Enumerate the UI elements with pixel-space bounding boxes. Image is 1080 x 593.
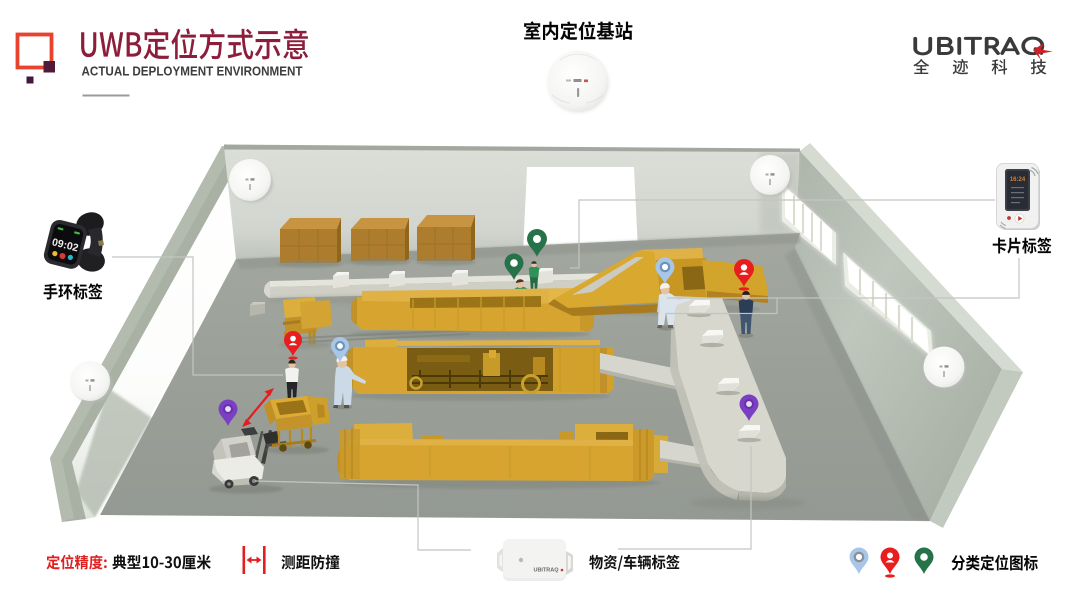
svg-text:UBITRAQ: UBITRAQ (533, 568, 559, 574)
svg-text:ACTUAL DEPLOYMENT ENVIRONMENT: ACTUAL DEPLOYMENT ENVIRONMENT (82, 64, 303, 79)
svg-text:16:24: 16:24 (1010, 177, 1026, 183)
